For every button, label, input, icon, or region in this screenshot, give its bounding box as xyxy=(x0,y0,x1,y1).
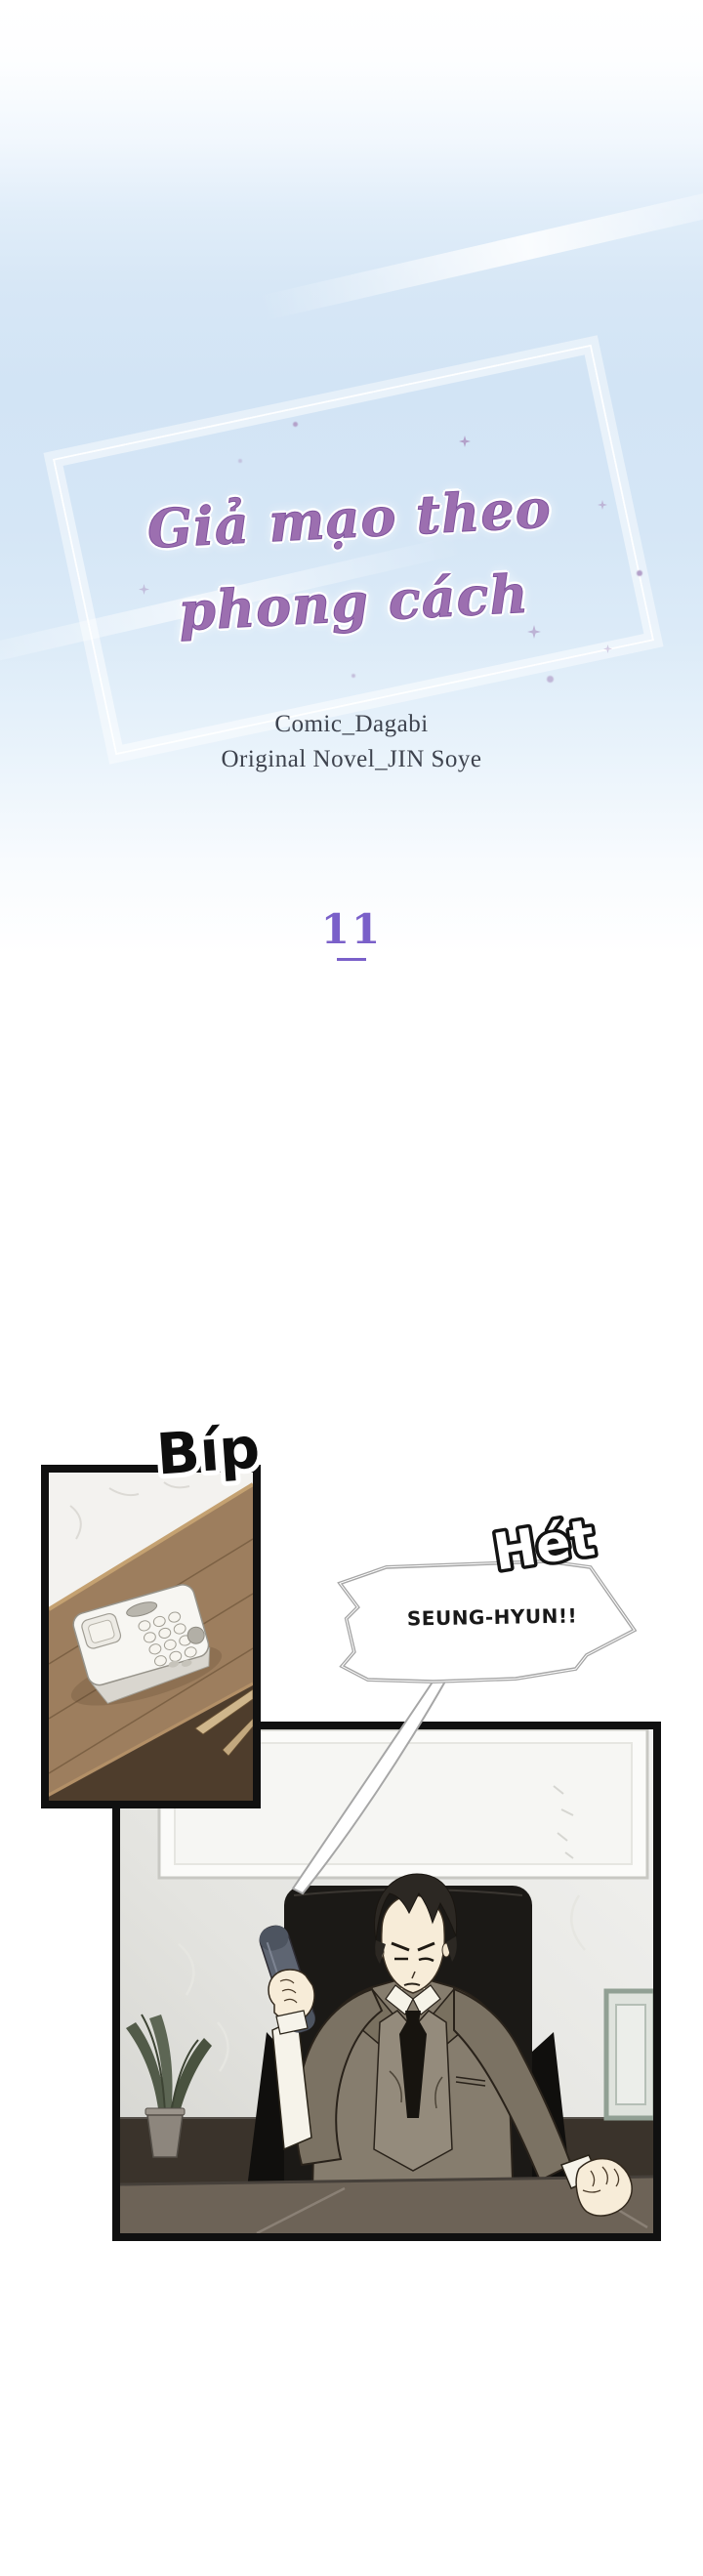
credits: Comic_Dagabi Original Novel_JIN Soye xyxy=(0,707,703,777)
series-title-line1: Giả mạo theo xyxy=(145,477,553,561)
chapter-underline xyxy=(337,958,366,961)
chapter-heading: 11 xyxy=(0,908,703,961)
sfx-phone-beep: Bíp xyxy=(115,1391,301,1508)
standing-picture-frame xyxy=(606,1991,653,2118)
webtoon-page: Giả mạo theo phong cách Comic_Dagabi Ori… xyxy=(0,0,703,2576)
panel-telephone xyxy=(41,1465,261,1808)
left-hand xyxy=(576,2159,632,2216)
series-title-line2: phong cách xyxy=(177,562,530,644)
credit-novel: Original Novel_JIN Soye xyxy=(0,742,703,777)
chapter-number: 11 xyxy=(0,908,703,951)
sparkle xyxy=(293,422,298,427)
speech-bubble: Hét xyxy=(273,1500,703,1910)
bubble-tail xyxy=(293,1678,446,1893)
sfx-beep-text: Bíp xyxy=(154,1414,262,1487)
sparkle xyxy=(351,674,355,678)
telephone-scene xyxy=(49,1473,253,1801)
sparkle xyxy=(238,459,242,463)
sparkle xyxy=(547,676,554,683)
credit-comic: Comic_Dagabi xyxy=(0,707,703,742)
dialogue-shout: SEUNG-HYUN!! xyxy=(389,1603,596,1631)
